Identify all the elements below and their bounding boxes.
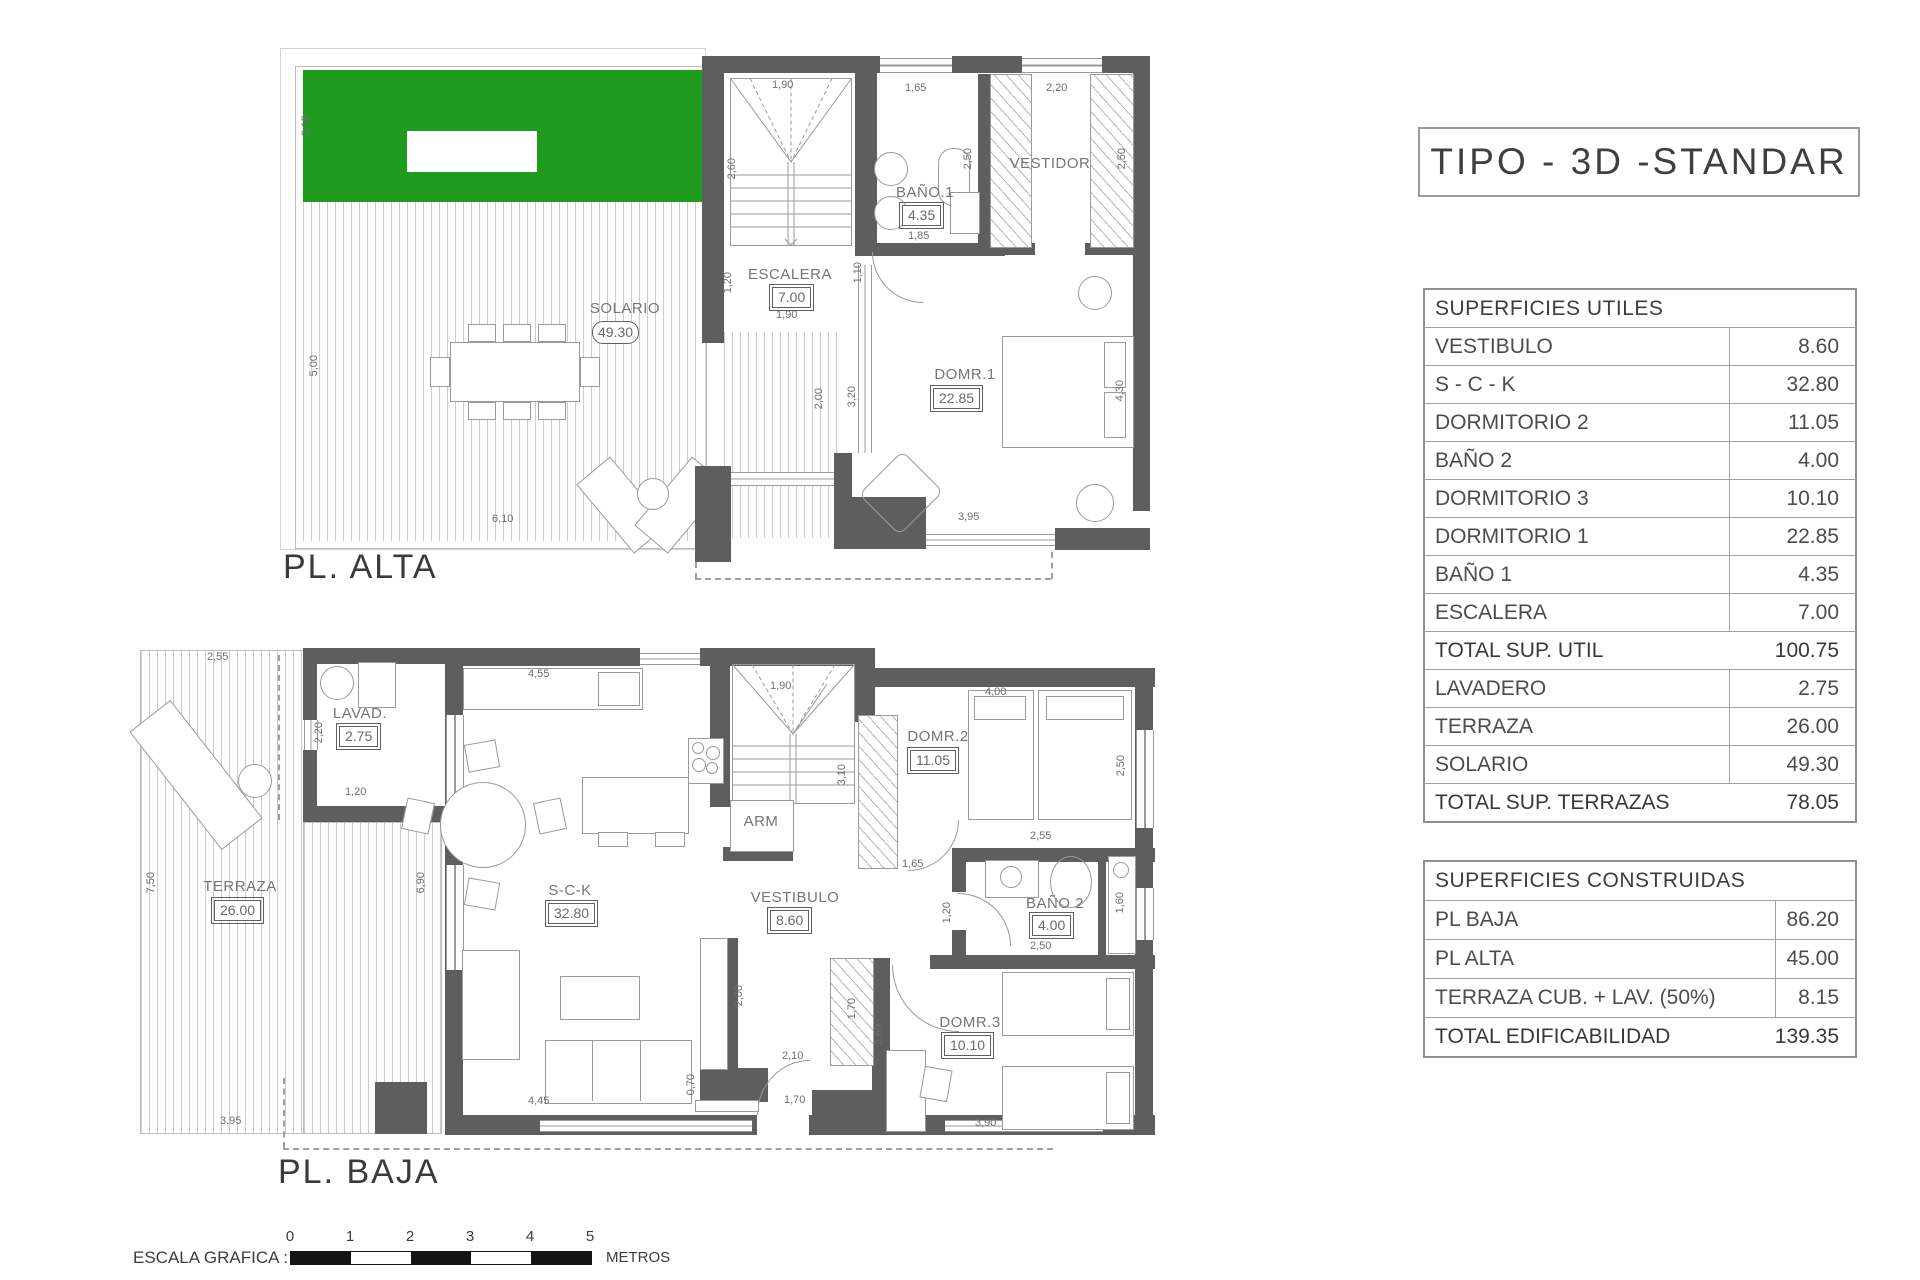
- scale-segment: [471, 1252, 531, 1264]
- room-label: BAÑO.1: [885, 184, 965, 201]
- room-label: ARM: [735, 813, 787, 830]
- pillow: [1106, 1072, 1130, 1124]
- scale-tick: 5: [582, 1228, 598, 1245]
- table-row: TOTAL SUP. UTIL100.75: [1425, 631, 1855, 669]
- room-label: BAÑO 2: [1015, 895, 1095, 912]
- dim-label: 2,00: [813, 388, 825, 409]
- areas-table-construidas: SUPERFICIES CONSTRUIDAS PL BAJA86.20PL A…: [1423, 860, 1857, 1058]
- dim-label: 3,20: [846, 386, 858, 407]
- room-area: 11.05: [910, 750, 956, 771]
- table-row: DORMITORIO 310.10: [1425, 479, 1855, 517]
- window: [1136, 730, 1154, 828]
- room-label: VESTIBULO: [750, 889, 840, 906]
- table-row: TOTAL EDIFICABILIDAD139.35: [1425, 1017, 1855, 1056]
- wall: [463, 648, 640, 666]
- washing-machine: [320, 666, 354, 700]
- table-cell-value: 8.15: [1775, 979, 1855, 1017]
- room-label: DOMR.3: [930, 1014, 1010, 1031]
- kitchen-sink: [598, 672, 640, 706]
- wall: [1055, 528, 1150, 550]
- hall-wardrobe: [700, 938, 728, 1070]
- room-label: SOLARIO: [570, 300, 680, 317]
- table-header: SUPERFICIES UTILES: [1425, 290, 1855, 327]
- table-cell-value: 86.20: [1775, 901, 1855, 939]
- scale-tick: 0: [282, 1228, 298, 1245]
- sheet-title: TIPO - 3D -STANDAR: [1418, 127, 1860, 197]
- scale-segment: [351, 1252, 411, 1264]
- window: [858, 265, 872, 453]
- sink: [874, 152, 908, 186]
- window: [640, 653, 700, 665]
- scale-tick: 4: [522, 1228, 538, 1245]
- room-label: DOMR.2: [898, 728, 978, 745]
- side-table: [637, 478, 669, 510]
- dim-label: 2,20: [1046, 82, 1067, 94]
- dim-label: 4,45: [528, 1095, 549, 1107]
- wall: [695, 466, 731, 562]
- stool: [598, 832, 628, 847]
- dim-label: 2,00: [733, 985, 745, 1006]
- dim-label: 1,10: [852, 262, 864, 283]
- dim-label: 3,10: [836, 764, 848, 785]
- table-cell-label: PL BAJA: [1425, 901, 1775, 939]
- dim-label: 1,90: [772, 79, 793, 91]
- stool: [655, 832, 685, 847]
- room-area: 4.35: [902, 205, 941, 226]
- dim-label: 2,60: [873, 1024, 885, 1045]
- burner: [692, 758, 706, 772]
- dim-label: 2,50: [1116, 148, 1128, 169]
- table-cell-value: 78.05: [1730, 784, 1855, 821]
- wall: [952, 56, 1022, 73]
- dim-label: 2,50: [1030, 940, 1051, 952]
- table-cell-label: TOTAL SUP. TERRAZAS: [1425, 784, 1730, 821]
- table-cell-value: 32.80: [1729, 366, 1855, 403]
- table-cell-value: 10.10: [1729, 480, 1855, 517]
- laundry-counter: [358, 662, 396, 708]
- dim-label: 2,55: [1030, 830, 1051, 842]
- room-label: VESTIDOR: [995, 155, 1105, 172]
- table-row: DORMITORIO 122.85: [1425, 517, 1855, 555]
- table-cell-value: 22.85: [1729, 518, 1855, 555]
- entry-opening: [757, 1115, 809, 1135]
- chair: [468, 324, 496, 342]
- solario-deck-east: [724, 332, 838, 538]
- grass-opening: [407, 131, 537, 172]
- scale-tick: 2: [402, 1228, 418, 1245]
- dim-label: 4,55: [528, 668, 549, 680]
- table-row: PL BAJA86.20: [1425, 900, 1855, 939]
- sofa: [545, 1040, 692, 1104]
- dim-label: 1,20: [941, 902, 953, 923]
- window: [926, 534, 1055, 546]
- table-cell-label: DORMITORIO 2: [1425, 404, 1729, 441]
- table-cell-value: 4.00: [1729, 442, 1855, 479]
- dim-label: 0,70: [685, 1074, 697, 1095]
- side-table: [238, 764, 272, 798]
- table-row: PL ALTA45.00: [1425, 939, 1855, 978]
- scale-tick: 1: [342, 1228, 358, 1245]
- pillow: [1106, 978, 1130, 1030]
- room-area: 26.00: [214, 900, 261, 921]
- burner: [706, 762, 718, 774]
- table-cell-label: SOLARIO: [1425, 746, 1729, 783]
- table-row: VESTIBULO8.60: [1425, 327, 1855, 365]
- wall: [1098, 848, 1106, 955]
- dim-label: 3,95: [958, 511, 979, 523]
- table-body: VESTIBULO8.60S - C - K32.80DORMITORIO 21…: [1425, 327, 1855, 821]
- plant: [1078, 276, 1112, 310]
- dim-label: 2,55: [207, 651, 228, 663]
- projection-line: [278, 655, 280, 820]
- dim-label: 6,90: [415, 872, 427, 893]
- table-row: DORMITORIO 211.05: [1425, 403, 1855, 441]
- table-row: TOTAL SUP. TERRAZAS78.05: [1425, 783, 1855, 821]
- scale-segment: [291, 1252, 351, 1264]
- wall: [812, 1090, 872, 1118]
- room-label: DOMR.1: [925, 366, 1005, 383]
- table-cell-value: 2.75: [1729, 670, 1855, 707]
- room-area: 7.00: [772, 287, 811, 308]
- room-label: LAVAD.: [325, 705, 395, 722]
- room-area: 22.85: [933, 388, 980, 409]
- table-cell-label: VESTIBULO: [1425, 328, 1729, 365]
- shower-head: [1113, 862, 1129, 878]
- pillow: [1046, 696, 1124, 720]
- wall: [700, 1068, 768, 1102]
- dim-label: 4,00: [985, 686, 1006, 698]
- dim-label: 2,60: [726, 158, 738, 179]
- dim-label: 2,10: [782, 1050, 803, 1062]
- burner: [692, 742, 704, 754]
- stair-flight: [858, 715, 898, 869]
- wall: [1133, 56, 1150, 511]
- scale-segment: [411, 1252, 471, 1264]
- wall: [855, 73, 877, 245]
- dim-label: 1,20: [345, 786, 366, 798]
- table-row: ESCALERA7.00: [1425, 593, 1855, 631]
- room-label: ESCALERA: [735, 266, 845, 283]
- dim-label: 4,30: [1114, 380, 1126, 401]
- porch-pillar: [375, 1082, 427, 1134]
- table-cell-label: ESCALERA: [1425, 594, 1729, 631]
- dim-label: 1,65: [905, 82, 926, 94]
- table-cell-value: 139.35: [1776, 1018, 1855, 1056]
- dim-label: 2,50: [1115, 755, 1127, 776]
- staircase: [730, 78, 852, 246]
- room-area: 8.60: [770, 910, 809, 931]
- round-table: [440, 782, 526, 868]
- scale-unit: METROS: [606, 1249, 670, 1266]
- table-cell-value: 7.00: [1729, 594, 1855, 631]
- dim-label: 2,20: [313, 722, 325, 743]
- table-cell-value: 49.30: [1729, 746, 1855, 783]
- window: [1022, 58, 1102, 73]
- dim-label: 3,95: [220, 1115, 241, 1127]
- pillow: [974, 696, 1026, 720]
- table-row: BAÑO 14.35: [1425, 555, 1855, 593]
- chair: [503, 324, 531, 342]
- table-cell-label: BAÑO 1: [1425, 556, 1729, 593]
- railing: [731, 472, 834, 486]
- plan-title-baja: PL. BAJA: [278, 1153, 440, 1192]
- wall: [952, 848, 966, 892]
- table-header: SUPERFICIES CONSTRUIDAS: [1425, 862, 1855, 900]
- dim-label: 1,85: [908, 230, 929, 242]
- chair: [468, 402, 496, 420]
- table-row: BAÑO 24.00: [1425, 441, 1855, 479]
- room-label: S-C-K: [530, 882, 610, 899]
- kitchen-island: [582, 777, 689, 834]
- dim-label: 7,50: [145, 872, 157, 893]
- room-area: 10.10: [944, 1035, 991, 1056]
- room-area: 4.00: [1032, 915, 1071, 936]
- dim-label: 2,15: [300, 115, 312, 136]
- dim-label: 3,90: [975, 1117, 996, 1129]
- dim-label: 1,90: [770, 680, 791, 692]
- table-cell-value: 100.75: [1730, 632, 1855, 669]
- window: [540, 1120, 752, 1132]
- table-cell-label: TERRAZA: [1425, 708, 1729, 745]
- tv-unit: [695, 1100, 759, 1112]
- room-area: 2.75: [339, 726, 378, 747]
- projection-line: [283, 1148, 1053, 1150]
- dim-label: 1,90: [776, 309, 797, 321]
- table-row: LAVADERO2.75: [1425, 669, 1855, 707]
- sofa: [462, 950, 520, 1060]
- chair: [533, 797, 567, 834]
- table-cell-label: TOTAL EDIFICABILIDAD: [1425, 1018, 1776, 1056]
- burner: [706, 746, 720, 760]
- scale-ticks: 012345: [0, 1228, 700, 1246]
- wall: [303, 648, 317, 720]
- table-cell-label: DORMITORIO 3: [1425, 480, 1729, 517]
- drawing-sheet: SOLARIO 49.30 ESCALERA 7.00 BAÑO.1 4.35 …: [0, 0, 1920, 1280]
- areas-table-utiles: SUPERFICIES UTILES VESTIBULO8.60S - C - …: [1423, 288, 1857, 823]
- window: [880, 58, 952, 73]
- projection-line: [695, 578, 1051, 580]
- table-cell-label: TOTAL SUP. UTIL: [1425, 632, 1730, 669]
- projection-line: [1051, 552, 1053, 579]
- plan-title-alta: PL. ALTA: [283, 548, 438, 587]
- sofa-seam: [640, 1041, 641, 1101]
- table-cell-label: LAVADERO: [1425, 670, 1729, 707]
- chair: [430, 357, 450, 387]
- door-arc: [872, 252, 923, 303]
- dim-label: 5,00: [308, 355, 320, 376]
- chair: [503, 402, 531, 420]
- table-cell-label: S - C - K: [1425, 366, 1729, 403]
- dim-label: 6,10: [492, 513, 513, 525]
- scale-bar: [290, 1251, 592, 1265]
- plant: [1076, 484, 1114, 522]
- projection-line: [283, 1078, 285, 1148]
- wall: [702, 56, 724, 343]
- table-cell-label: TERRAZA CUB. + LAV. (50%): [1425, 979, 1775, 1017]
- scale-segment: [531, 1252, 591, 1264]
- dim-label: 1,70: [846, 998, 858, 1019]
- scale-tick: 3: [462, 1228, 478, 1245]
- room-label: TERRAZA: [200, 878, 280, 895]
- table-row: TERRAZA26.00: [1425, 707, 1855, 745]
- sink-bowl: [1000, 866, 1022, 888]
- table-body: PL BAJA86.20PL ALTA45.00TERRAZA CUB. + L…: [1425, 900, 1855, 1056]
- coffee-table: [560, 976, 640, 1020]
- dim-label: 1,65: [902, 858, 923, 870]
- sofa-seam: [592, 1041, 593, 1101]
- window: [1136, 888, 1154, 940]
- dim-label: 1,60: [1114, 892, 1126, 913]
- dim-label: 1,20: [722, 272, 734, 293]
- table-cell-value: 26.00: [1729, 708, 1855, 745]
- scale-label: ESCALA GRAFICA :: [133, 1248, 288, 1268]
- chair: [464, 877, 500, 910]
- table-cell-label: DORMITORIO 1: [1425, 518, 1729, 555]
- chair: [538, 402, 566, 420]
- dim-label: 1,70: [784, 1094, 805, 1106]
- chair: [538, 324, 566, 342]
- wall: [702, 56, 880, 73]
- projection-line: [695, 562, 697, 579]
- dining-table: [450, 342, 580, 402]
- chair: [464, 739, 500, 772]
- room-area: 49.30: [592, 321, 639, 344]
- table-cell-value: 4.35: [1729, 556, 1855, 593]
- table-row: S - C - K32.80: [1425, 365, 1855, 403]
- dim-label: 2,50: [962, 148, 974, 169]
- table-cell-label: PL ALTA: [1425, 940, 1775, 978]
- chair: [580, 357, 600, 387]
- wall: [930, 955, 1155, 969]
- table-cell-value: 45.00: [1775, 940, 1855, 978]
- wall: [870, 668, 1155, 687]
- wall: [710, 662, 730, 807]
- table-row: SOLARIO49.30: [1425, 745, 1855, 783]
- table-row: TERRAZA CUB. + LAV. (50%)8.15: [1425, 978, 1855, 1017]
- table-cell-value: 11.05: [1729, 404, 1855, 441]
- wall: [303, 806, 463, 822]
- room-area: 32.80: [548, 903, 595, 924]
- table-cell-label: BAÑO 2: [1425, 442, 1729, 479]
- door-arc: [958, 893, 1011, 946]
- table-cell-value: 8.60: [1729, 328, 1855, 365]
- chair: [919, 1066, 952, 1102]
